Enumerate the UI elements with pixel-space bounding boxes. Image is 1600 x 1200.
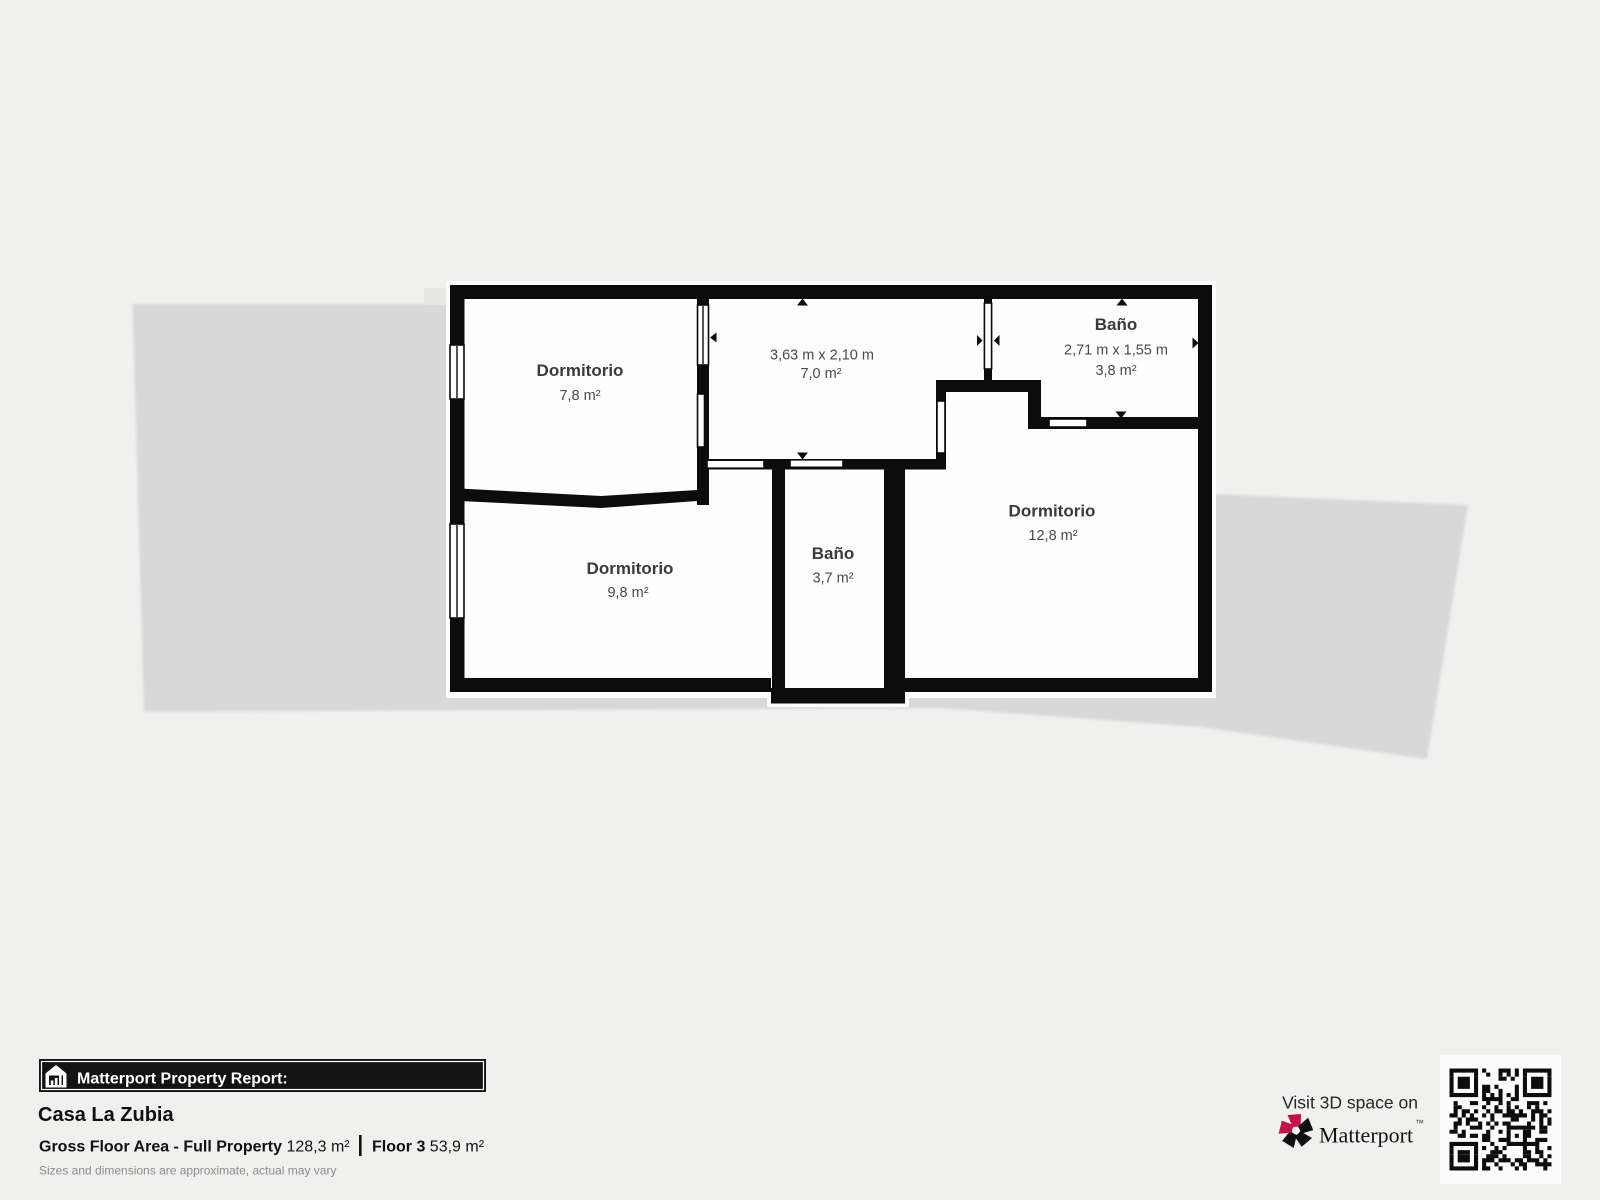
svg-text:Baño: Baño [812, 544, 855, 563]
svg-text:Casa La Zubia: Casa La Zubia [38, 1104, 174, 1126]
svg-text:7,8 m²: 7,8 m² [559, 388, 600, 404]
svg-text:7,0 m²: 7,0 m² [800, 366, 841, 382]
svg-text:3,63 m x 2,10 m: 3,63 m x 2,10 m [770, 348, 874, 364]
svg-text:Dormitorio: Dormitorio [537, 361, 624, 380]
svg-text:2,71 m x 1,55 m: 2,71 m x 1,55 m [1064, 343, 1168, 359]
svg-text:™: ™ [1415, 1118, 1424, 1128]
svg-text:Baño: Baño [1095, 315, 1138, 334]
svg-text:Matterport Property Report:: Matterport Property Report: [77, 1071, 288, 1088]
svg-text:3,8 m²: 3,8 m² [1095, 363, 1136, 379]
svg-text:3,7 m²: 3,7 m² [812, 571, 853, 587]
svg-text:Visit 3D space on: Visit 3D space on [1282, 1093, 1418, 1113]
svg-text:9,8 m²: 9,8 m² [607, 585, 648, 601]
svg-text:Dormitorio: Dormitorio [1009, 502, 1096, 521]
svg-text:Floor 3 53,9 m²: Floor 3 53,9 m² [372, 1139, 485, 1156]
svg-text:12,8 m²: 12,8 m² [1028, 528, 1077, 544]
svg-text:Dormitorio: Dormitorio [587, 559, 674, 578]
svg-text:Gross Floor Area - Full Proper: Gross Floor Area - Full Property 128,3 m… [39, 1139, 350, 1156]
svg-text:Sizes and dimensions are appro: Sizes and dimensions are approximate, ac… [39, 1164, 336, 1178]
svg-text:Matterport: Matterport [1319, 1123, 1413, 1148]
